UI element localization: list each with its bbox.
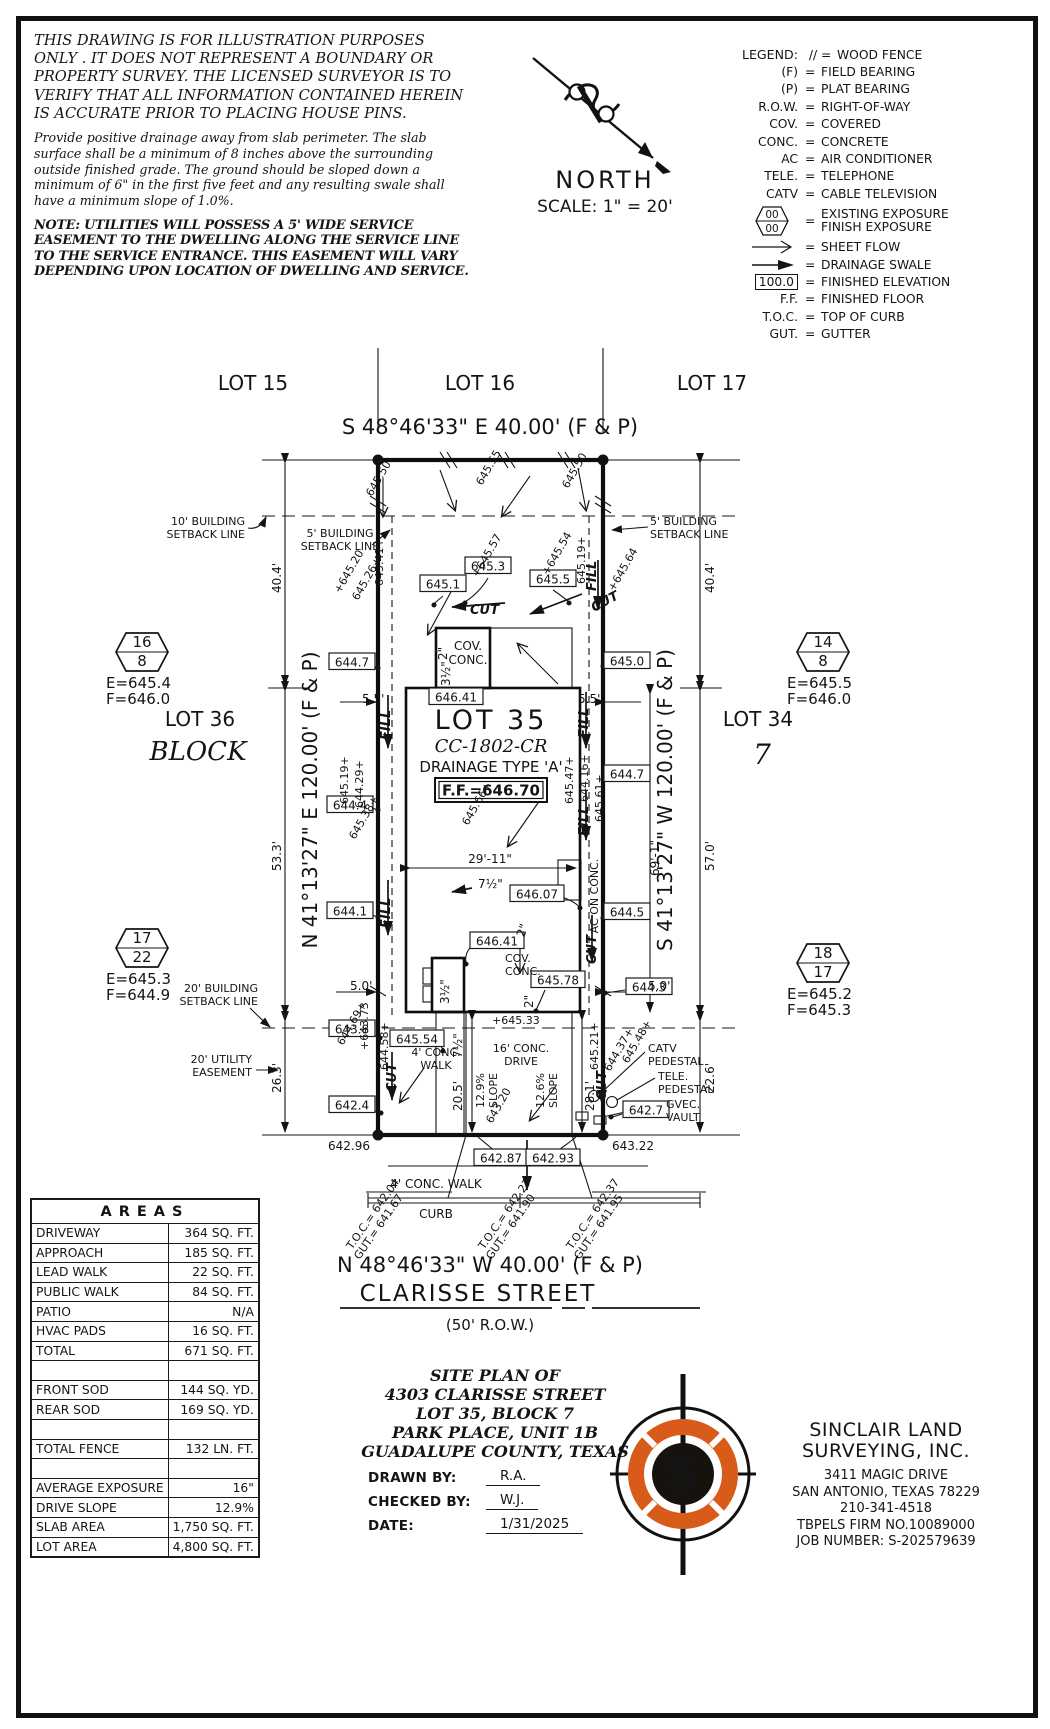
- legend-label: FINISHED FLOOR: [821, 292, 1032, 306]
- conc-label: CONC.: [449, 653, 488, 667]
- tele-pedestal-2: PEDESTAL: [658, 1083, 714, 1096]
- drainage-note: Provide positive drainage away from slab…: [34, 130, 470, 209]
- dim-29-11: 29'-11": [468, 852, 512, 866]
- legend-label: PLAT BEARING: [821, 82, 1032, 96]
- svg-text:SETBACK LINE: SETBACK LINE: [650, 528, 729, 541]
- legend-label: TOP OF CURB: [821, 310, 1032, 324]
- svg-text:00: 00: [765, 223, 778, 235]
- bearing-top: S 48°46'33" E 40.00' (F & P): [342, 415, 638, 439]
- dim-53-3-left: 53.3': [270, 841, 284, 871]
- legend-sym: (F): [702, 65, 805, 79]
- svg-text:644.7: 644.7: [335, 656, 369, 670]
- north-arrow: [505, 50, 695, 175]
- table-row: LOT AREA4,800 SQ. FT.: [31, 1537, 259, 1557]
- dim-5-0-left: 5.0': [350, 979, 372, 993]
- legend-label: RIGHT-OF-WAY: [821, 100, 1032, 114]
- exposure-hexagon-icon: 00 00: [702, 204, 805, 238]
- lot-15-label: LOT 15: [218, 371, 288, 395]
- dim-5-5-right: 5.5': [578, 692, 600, 706]
- street-name: CLARISSE STREET: [360, 1281, 597, 1307]
- lot-36-label: LOT 36: [165, 707, 235, 731]
- svg-text:20' BUILDING: 20' BUILDING: [184, 982, 258, 995]
- table-row: LEAD WALK22 SQ. FT.: [31, 1263, 259, 1283]
- svg-text:646.07: 646.07: [516, 888, 558, 902]
- cov-label-2: COV.: [505, 952, 531, 965]
- gvec-vault-1: GVEC.: [666, 1098, 700, 1111]
- legend-label: EXISTING EXPOSURE: [821, 208, 1032, 221]
- table-row: SLAB AREA1,750 SQ. FT.: [31, 1517, 259, 1537]
- svg-text:643.22: 643.22: [612, 1139, 654, 1153]
- disclaimer-block: THIS DRAWING IS FOR ILLUSTRATION PURPOSE…: [34, 32, 470, 279]
- svg-text:646.41: 646.41: [476, 935, 518, 949]
- svg-text:SETBACK LINE: SETBACK LINE: [180, 995, 259, 1008]
- svg-text:8: 8: [137, 652, 147, 670]
- legend-sym: (P): [702, 82, 805, 96]
- cov-label: COV.: [454, 639, 482, 653]
- bearing-right: S 41°13'27" W 120.00' (F & P): [653, 649, 677, 951]
- svg-text:645.61+: 645.61+: [593, 774, 606, 822]
- legend-label: COVERED: [821, 117, 1032, 131]
- slope-word-2: SLOPE: [547, 1073, 560, 1108]
- svg-text:644.16+: 644.16+: [578, 754, 591, 802]
- table-row: TOTAL671 SQ. FT.: [31, 1341, 259, 1361]
- svg-text:5' BUILDING: 5' BUILDING: [650, 515, 717, 528]
- house-footprint: [406, 628, 581, 1012]
- tele-pedestal-1: TELE.: [657, 1070, 688, 1083]
- catv-pedestal-1: CATV: [648, 1042, 677, 1055]
- svg-text:+643.73: +643.73: [358, 1002, 371, 1050]
- svg-text:644.5: 644.5: [610, 906, 644, 920]
- legend-sym: F.F.: [702, 292, 805, 306]
- dim-5-0-right: 5.0': [648, 979, 670, 993]
- svg-text:FILL: FILL: [577, 708, 592, 738]
- lot-17-label: LOT 17: [677, 371, 747, 395]
- legend-title: LEGEND:: [702, 47, 805, 62]
- dim-26-3-left: 26.3': [270, 1063, 284, 1093]
- legend-label: CONCRETE: [821, 135, 1032, 149]
- table-row: HVAC PADS16 SQ. FT.: [31, 1321, 259, 1341]
- svg-text:8: 8: [818, 652, 828, 670]
- legend-label: FINISH EXPOSURE: [821, 221, 1032, 234]
- table-row: DRIVE SLOPE12.9%: [31, 1498, 259, 1518]
- toc-gut-cluster: T.O.C.= 642.04GUT.= 641.67 T.O.C.= 642.2…: [342, 1176, 632, 1262]
- table-row: PATION/A: [31, 1302, 259, 1322]
- checked-by-label: CHECKED BY:: [368, 1494, 486, 1510]
- legend-label: FINISHED ELEVATION: [821, 275, 1032, 289]
- drawn-by-value: R.A.: [486, 1468, 540, 1486]
- svg-text:FILL: FILL: [577, 806, 592, 836]
- svg-text:5' BUILDING: 5' BUILDING: [307, 527, 374, 540]
- lot-35-label: LOT 35: [435, 705, 548, 736]
- svg-text:F=646.0: F=646.0: [787, 690, 851, 708]
- walk-label-1: 4' CONC.: [411, 1046, 460, 1059]
- legend-sym: R.O.W.: [702, 100, 805, 114]
- svg-text:645.21+: 645.21+: [588, 1022, 601, 1070]
- drive-label-2: DRIVE: [504, 1055, 538, 1068]
- company-logo: S: [608, 1372, 758, 1577]
- svg-text:646.41: 646.41: [435, 691, 477, 705]
- slope-12-9: 12.9%: [474, 1073, 487, 1108]
- svg-text:642.93: 642.93: [532, 1152, 574, 1166]
- svg-text:642.87: 642.87: [480, 1152, 522, 1166]
- svg-text:+645.33: +645.33: [492, 1014, 540, 1027]
- svg-text:F=644.9: F=644.9: [106, 986, 170, 1004]
- legend-sym: CATV: [702, 187, 805, 201]
- legend-sym: TELE.: [702, 169, 805, 183]
- table-row: PUBLIC WALK84 SQ. FT.: [31, 1282, 259, 1302]
- svg-text:645.50: 645.50: [559, 451, 590, 491]
- svg-text:645.19+: 645.19+: [575, 536, 588, 584]
- svg-text:645.47+: 645.47+: [563, 756, 576, 804]
- legend-sym: CONC.: [702, 135, 805, 149]
- company-phone: 210-341-4518: [752, 1501, 1020, 1518]
- row-width-label: (50' R.O.W.): [446, 1316, 534, 1334]
- legend-sym: AC: [702, 152, 805, 166]
- svg-text:642.96: 642.96: [328, 1139, 370, 1153]
- table-row: DRIVEWAY364 SQ. FT.: [31, 1224, 259, 1244]
- svg-text:645.41+: 645.41+: [373, 538, 386, 586]
- company-name-1: SINCLAIR LAND: [752, 1420, 1020, 1441]
- finished-elevation-box: 100.0: [755, 274, 798, 290]
- areas-title: AREAS: [31, 1199, 259, 1224]
- svg-text:SETBACK LINE: SETBACK LINE: [167, 528, 246, 541]
- company-name-2: SURVEYING, INC.: [752, 1441, 1020, 1462]
- checked-by-value: W.J.: [486, 1492, 538, 1510]
- svg-text:CUT: CUT: [589, 588, 623, 615]
- svg-text:645.1: 645.1: [426, 578, 460, 592]
- svg-text:645.5: 645.5: [536, 573, 570, 587]
- legend-label: SHEET FLOW: [821, 240, 1032, 254]
- block-number: 7: [753, 738, 771, 771]
- table-row: APPROACH185 SQ. FT.: [31, 1243, 259, 1263]
- svg-text:18: 18: [813, 944, 832, 962]
- company-firm-number: TBPELS FIRM NO.10089000: [752, 1518, 1020, 1535]
- ac-on-conc-label: AC ON CONC.: [588, 859, 601, 934]
- svg-text:00: 00: [765, 209, 778, 221]
- catv-pedestal-2: PEDESTAL: [648, 1055, 704, 1068]
- areas-table: AREAS DRIVEWAY364 SQ. FT. APPROACH185 SQ…: [30, 1198, 260, 1558]
- svg-text:17: 17: [813, 963, 832, 981]
- svg-text:F=646.0: F=646.0: [106, 690, 170, 708]
- company-address-1: 3411 MAGIC DRIVE: [752, 1468, 1020, 1485]
- north-label-block: NORTH SCALE: 1" = 20': [495, 166, 715, 217]
- svg-text:FILL: FILL: [379, 710, 394, 740]
- svg-text:F=645.3: F=645.3: [787, 1001, 851, 1019]
- date-value: 1/31/2025: [486, 1516, 583, 1534]
- walk-label-bottom: 4' CONC. WALK: [390, 1177, 483, 1191]
- svg-text:644.29+: 644.29+: [353, 760, 366, 808]
- table-row: [31, 1459, 259, 1479]
- job-number: JOB NUMBER: S-202579639: [752, 1534, 1020, 1551]
- sheet-flow-arrow-icon: [702, 240, 805, 255]
- site-plan-drawing: LOT 15 LOT 16 LOT 17 S 48°46'33" E 40.00…: [0, 330, 1050, 1340]
- utilities-note: NOTE: UTILITIES WILL POSSESS A 5' WIDE S…: [34, 218, 470, 279]
- conc-label-2: CONC.: [505, 965, 541, 978]
- walk-label-2: WALK: [420, 1059, 452, 1072]
- svg-text:645.54: 645.54: [396, 1033, 438, 1047]
- dim-57-0-right: 57.0': [703, 841, 717, 871]
- svg-text:16: 16: [132, 633, 151, 651]
- north-label: NORTH: [495, 166, 715, 194]
- legend-label: TELEPHONE: [821, 169, 1032, 183]
- svg-text:CUT: CUT: [595, 1070, 610, 1100]
- bearing-bottom: N 48°46'33" W 40.00' (F & P): [337, 1253, 643, 1277]
- date-label: DATE:: [368, 1518, 486, 1534]
- svg-text:EASEMENT: EASEMENT: [192, 1066, 252, 1079]
- drawn-by-label: DRAWN BY:: [368, 1470, 486, 1486]
- company-address-2: SAN ANTONIO, TEXAS 78229: [752, 1485, 1020, 1502]
- legend: LEGEND://=WOOD FENCE (F)=FIELD BEARING (…: [702, 46, 1032, 343]
- drainage-swale-arrow-icon: [702, 257, 805, 272]
- drainage-type: DRAINAGE TYPE 'A': [419, 758, 562, 776]
- bearing-left: N 41°13'27" E 120.00' (F & P): [298, 651, 322, 948]
- svg-text:645.0: 645.0: [610, 655, 644, 669]
- dim-28-1: 28.1': [583, 1081, 597, 1111]
- lot-16-label: LOT 16: [445, 371, 515, 395]
- legend-label: DRAINAGE SWALE: [821, 258, 1032, 272]
- svg-text:645.78: 645.78: [537, 974, 579, 988]
- table-row: REAR SOD169 SQ. YD.: [31, 1400, 259, 1420]
- legend-label: WOOD FENCE: [837, 48, 1032, 62]
- svg-text:14: 14: [813, 633, 832, 651]
- dim-5-5-left: 5.5': [362, 692, 384, 706]
- svg-text:644.58+: 644.58+: [378, 1022, 391, 1070]
- svg-text:20' UTILITY: 20' UTILITY: [191, 1053, 253, 1066]
- gvec-vault-2: VAULT: [666, 1111, 700, 1124]
- svg-text:22: 22: [132, 948, 151, 966]
- dim-40-4-left: 40.4': [270, 563, 284, 593]
- table-row: TOTAL FENCE132 LN. FT.: [31, 1439, 259, 1459]
- legend-label: FIELD BEARING: [821, 65, 1032, 79]
- svg-text:10' BUILDING: 10' BUILDING: [171, 515, 245, 528]
- svg-text:645.19+: 645.19+: [338, 756, 351, 804]
- drive-label-1: 16' CONC.: [493, 1042, 549, 1055]
- svg-text:642.4: 642.4: [335, 1099, 369, 1113]
- svg-text:CUT: CUT: [470, 603, 500, 618]
- dim-20-5: 20.5': [451, 1081, 465, 1111]
- legend-sym: T.O.C.: [702, 310, 805, 324]
- svg-text:SETBACK LINE: SETBACK LINE: [301, 540, 380, 553]
- slope-12-6: 12.6%: [534, 1073, 547, 1108]
- dim-69-1: 69'-1": [648, 840, 662, 876]
- dim-2-inch-3: 2": [522, 995, 536, 1008]
- table-row: FRONT SOD144 SQ. YD.: [31, 1380, 259, 1400]
- table-row: [31, 1361, 259, 1381]
- lot-34-label: LOT 34: [723, 707, 793, 731]
- company-block: SINCLAIR LAND SURVEYING, INC. 3411 MAGIC…: [752, 1420, 1020, 1551]
- legend-sym-wood-fence: //: [805, 48, 821, 62]
- svg-text:642.7: 642.7: [629, 1104, 663, 1118]
- slope-word-1: SLOPE: [487, 1073, 500, 1108]
- plan-code: CC-1802-CR: [435, 736, 548, 757]
- svg-text:17: 17: [132, 929, 151, 947]
- logo-letter: S: [666, 1447, 699, 1501]
- svg-text:644.1: 644.1: [333, 905, 367, 919]
- svg-text:+645.64: +645.64: [605, 546, 640, 594]
- scale-label: SCALE: 1" = 20': [495, 197, 715, 217]
- legend-label: CABLE TELEVISION: [821, 187, 1032, 201]
- disclaimer-paragraph: THIS DRAWING IS FOR ILLUSTRATION PURPOSE…: [34, 32, 470, 123]
- drawn-by-block: DRAWN BY:R.A. CHECKED BY:W.J. DATE:1/31/…: [368, 1468, 628, 1540]
- dim-7-5-inch: 7½": [478, 877, 503, 891]
- table-row: [31, 1419, 259, 1439]
- table-row: AVERAGE EXPOSURE16": [31, 1478, 259, 1498]
- svg-text:644.7: 644.7: [610, 768, 644, 782]
- curb-label: CURB: [419, 1207, 453, 1221]
- north-arrow-graphic: [533, 58, 671, 174]
- legend-label: AIR CONDITIONER: [821, 152, 1032, 166]
- svg-text:FILL: FILL: [379, 898, 394, 928]
- svg-text:CUT: CUT: [585, 934, 600, 964]
- dim-40-4-right: 40.4': [703, 563, 717, 593]
- dim-3-5-inch-2: 3½": [438, 979, 452, 1004]
- block-label: BLOCK: [148, 737, 248, 767]
- legend-sym: COV.: [702, 117, 805, 131]
- svg-text:645.55: 645.55: [473, 448, 504, 488]
